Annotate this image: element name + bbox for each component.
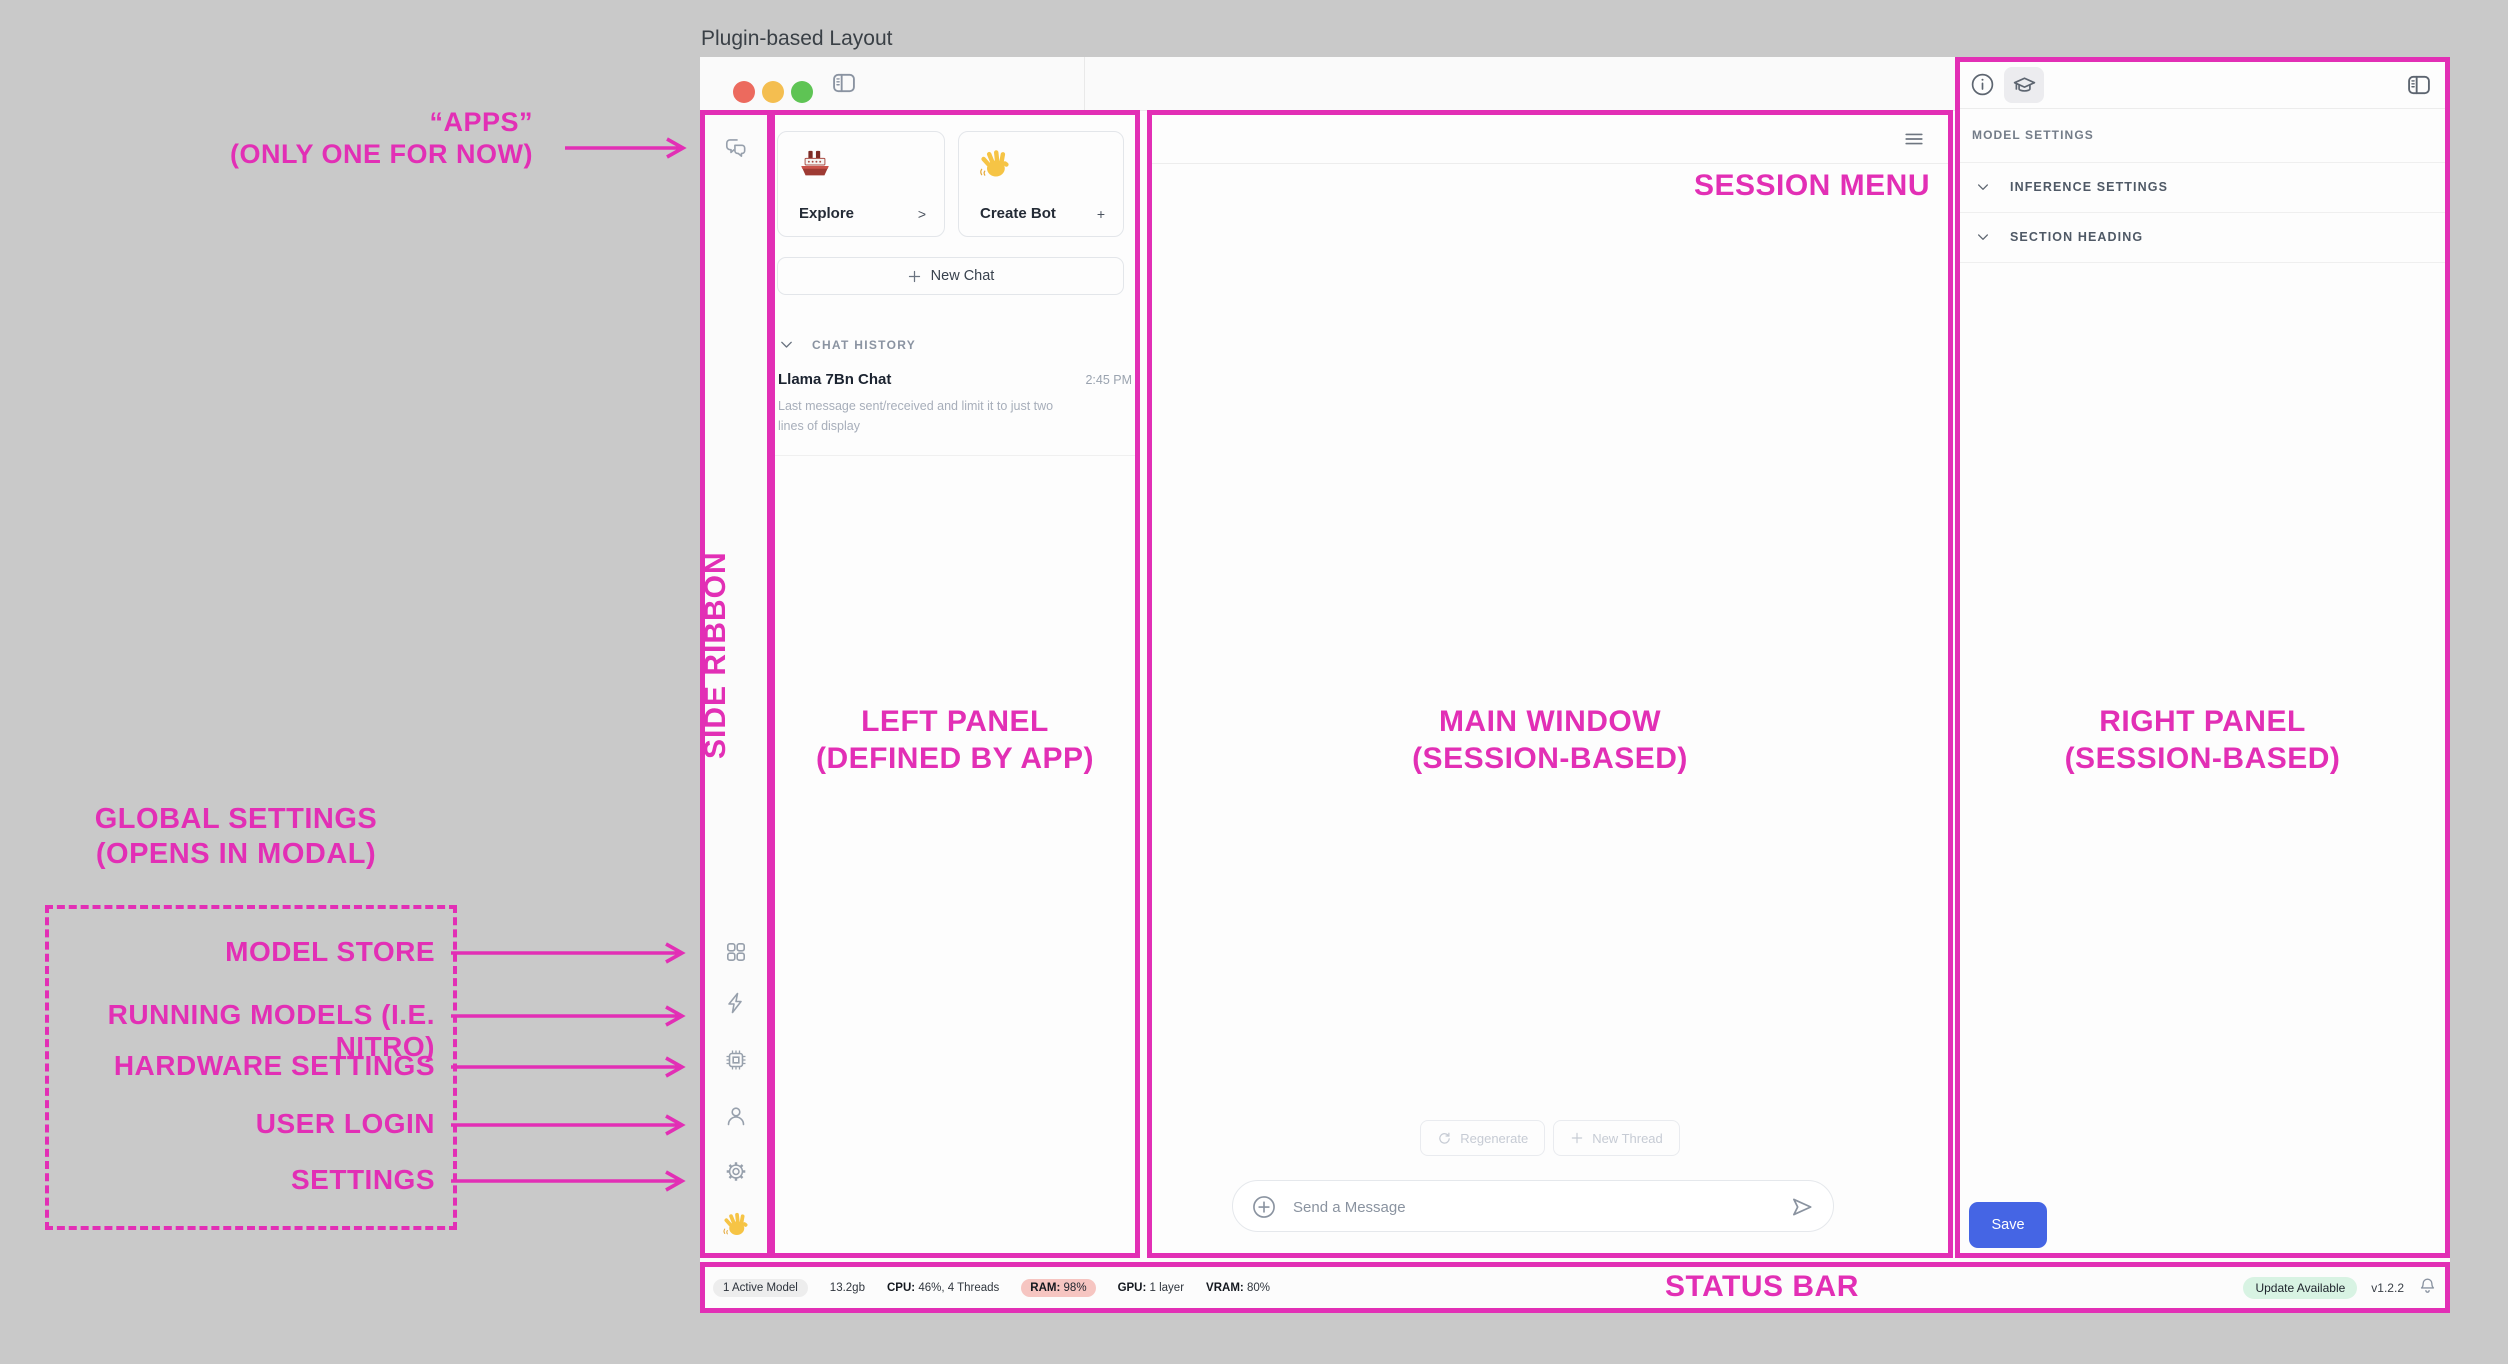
main-window-header: [1152, 115, 1948, 164]
chat-app-icon[interactable]: [723, 135, 749, 166]
waving-hand-emoji: [979, 148, 1011, 185]
minimize-window-button[interactable]: [762, 81, 784, 103]
page-title: Plugin-based Layout: [701, 27, 892, 51]
toggle-right-panel-icon[interactable]: [2405, 71, 2433, 104]
arrow-icon: [449, 1168, 689, 1194]
annotation-right-panel: RIGHT PANEL (SESSION-BASED): [1955, 703, 2450, 777]
annotation-session-menu: SESSION MENU: [1600, 169, 1930, 203]
send-message-icon[interactable]: [1789, 1194, 1815, 1225]
plus-icon: [907, 269, 922, 284]
status-bar-left: 1 Active Model 13.2gb CPU: 46%, 4 Thread…: [713, 1267, 1270, 1308]
create-bot-card-plus: +: [1097, 206, 1105, 222]
save-button[interactable]: Save: [1969, 1202, 2047, 1248]
right-panel-toolbar: [1960, 62, 2445, 109]
refresh-icon: [1437, 1131, 1452, 1146]
inference-settings-section[interactable]: INFERENCE SETTINGS: [1960, 162, 2445, 213]
status-bar-right: Update Available v1.2.2: [2243, 1267, 2437, 1308]
design-canvas: Plugin-based Layout: [0, 0, 2508, 1364]
model-store-icon[interactable]: [724, 940, 748, 969]
section-heading-section[interactable]: SECTION HEADING: [1960, 212, 2445, 263]
model-settings-label: MODEL SETTINGS: [1972, 128, 2094, 142]
explore-card-label: Explore: [799, 205, 854, 222]
annotation-global-settings: GLOBAL SETTINGS (OPENS IN MODAL): [60, 802, 412, 872]
user-login-icon[interactable]: [724, 1104, 748, 1133]
toggle-left-sidebar-icon[interactable]: [830, 69, 858, 102]
chevron-down-icon: [1976, 180, 1990, 194]
model-settings-tab[interactable]: [2004, 67, 2044, 103]
left-panel: Explore >: [770, 110, 1140, 1258]
annotation-left-panel: LEFT PANEL (DEFINED BY APP): [770, 703, 1140, 777]
inference-settings-label: INFERENCE SETTINGS: [2010, 180, 2168, 194]
chevron-down-icon: [1976, 230, 1990, 244]
chat-item-preview: Last message sent/received and limit it …: [778, 396, 1060, 437]
right-panel: MODEL SETTINGS INFERENCE SETTINGS SECTIO…: [1955, 57, 2450, 1258]
annotation-hardware-settings: HARDWARE SETTINGS: [45, 1050, 435, 1082]
app-version: v1.2.2: [2371, 1281, 2404, 1295]
model-settings-header: MODEL SETTINGS: [1960, 108, 2445, 163]
notifications-bell-icon[interactable]: [2418, 1276, 2437, 1300]
arrow-icon: [563, 135, 690, 161]
gpu-usage: GPU: 1 layer: [1118, 1282, 1184, 1294]
arrow-icon: [449, 1003, 689, 1029]
status-bar: 1 Active Model 13.2gb CPU: 46%, 4 Thread…: [700, 1262, 2450, 1313]
titlebar-divider: [1084, 57, 1085, 110]
new-thread-button[interactable]: New Thread: [1553, 1120, 1680, 1156]
create-bot-card-label: Create Bot: [980, 205, 1056, 222]
regenerate-button[interactable]: Regenerate: [1420, 1120, 1545, 1156]
message-input[interactable]: [1291, 1181, 1765, 1233]
app-window: Explore >: [700, 57, 2450, 1313]
cpu-usage: CPU: 46%, 4 Threads: [887, 1282, 999, 1294]
info-icon[interactable]: [1969, 71, 1996, 103]
annotation-apps: “APPS” (ONLY ONE FOR NOW): [150, 106, 533, 170]
explore-card-chevron: >: [918, 206, 926, 222]
chat-history-header: CHAT HISTORY: [812, 338, 916, 352]
active-model-badge: 1 Active Model: [713, 1279, 808, 1297]
chat-item-time: 2:45 PM: [1085, 373, 1132, 387]
arrow-icon: [449, 1054, 689, 1080]
annotation-main-window: MAIN WINDOW (SESSION-BASED): [1147, 703, 1953, 777]
hardware-settings-icon[interactable]: [724, 1048, 748, 1077]
update-available-badge[interactable]: Update Available: [2243, 1277, 2357, 1299]
plus-icon: [1570, 1131, 1584, 1145]
ship-emoji: [798, 148, 832, 187]
section-heading-label: SECTION HEADING: [2010, 230, 2143, 244]
attach-plus-icon[interactable]: [1251, 1194, 1277, 1225]
thread-actions: Regenerate New Thread: [1152, 1120, 1948, 1156]
close-window-button[interactable]: [733, 81, 755, 103]
annotation-model-store: MODEL STORE: [45, 936, 435, 968]
waving-hand-emoji[interactable]: [723, 1211, 750, 1243]
chat-item-title: Llama 7Bn Chat: [778, 371, 891, 388]
main-window: Regenerate New Thread: [1147, 110, 1953, 1258]
chat-history-toggle[interactable]: CHAT HISTORY: [779, 337, 916, 352]
running-models-icon[interactable]: [724, 991, 748, 1020]
create-bot-card[interactable]: Create Bot +: [958, 131, 1124, 237]
explore-card[interactable]: Explore >: [777, 131, 945, 237]
regenerate-label: Regenerate: [1460, 1131, 1528, 1146]
divider: [775, 455, 1135, 456]
arrow-icon: [449, 1112, 689, 1138]
annotation-status-bar: STATUS BAR: [1665, 1270, 1859, 1304]
maximize-window-button[interactable]: [791, 81, 813, 103]
session-menu-icon[interactable]: [1902, 128, 1926, 155]
new-thread-label: New Thread: [1592, 1131, 1663, 1146]
ram-usage-badge: RAM: 98%: [1021, 1279, 1095, 1297]
settings-gear-icon[interactable]: [725, 1160, 748, 1188]
annotation-user-login: USER LOGIN: [45, 1108, 435, 1140]
vram-usage: VRAM: 80%: [1206, 1282, 1270, 1294]
chevron-down-icon: [779, 337, 794, 352]
graduation-cap-icon: [2012, 73, 2037, 98]
new-chat-label: New Chat: [931, 268, 995, 284]
memory-usage: 13.2gb: [830, 1282, 865, 1294]
message-input-container: [1232, 1180, 1834, 1232]
arrow-icon: [449, 940, 689, 966]
annotation-settings: SETTINGS: [45, 1164, 435, 1196]
new-chat-button[interactable]: New Chat: [777, 257, 1124, 295]
annotation-side-ribbon: SIDE RIBBON: [699, 480, 757, 830]
